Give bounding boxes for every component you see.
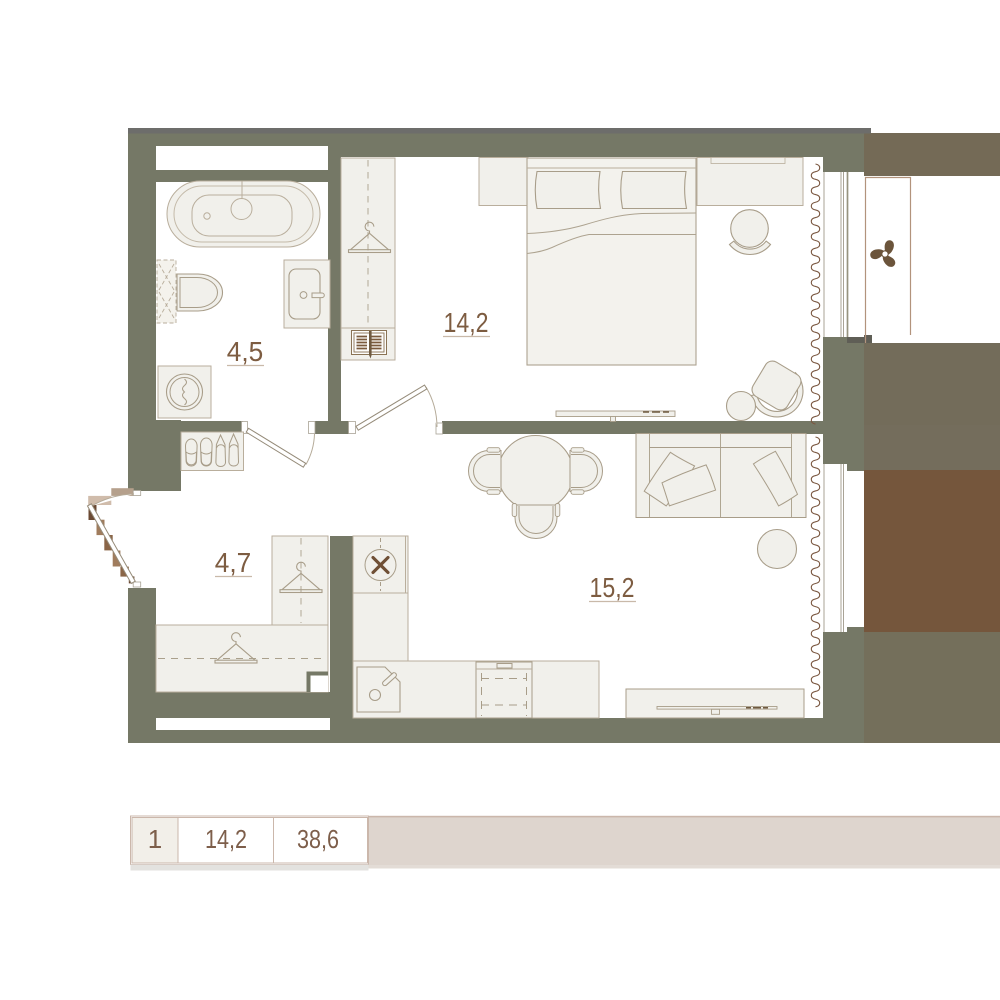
svg-text:38,6: 38,6	[297, 824, 339, 854]
svg-text:14,2: 14,2	[444, 307, 489, 338]
svg-text:1: 1	[148, 824, 162, 854]
svg-text:4,7: 4,7	[215, 547, 252, 578]
svg-text:15,2: 15,2	[590, 572, 635, 603]
svg-text:14,2: 14,2	[205, 824, 247, 854]
svg-text:4,5: 4,5	[227, 336, 264, 367]
